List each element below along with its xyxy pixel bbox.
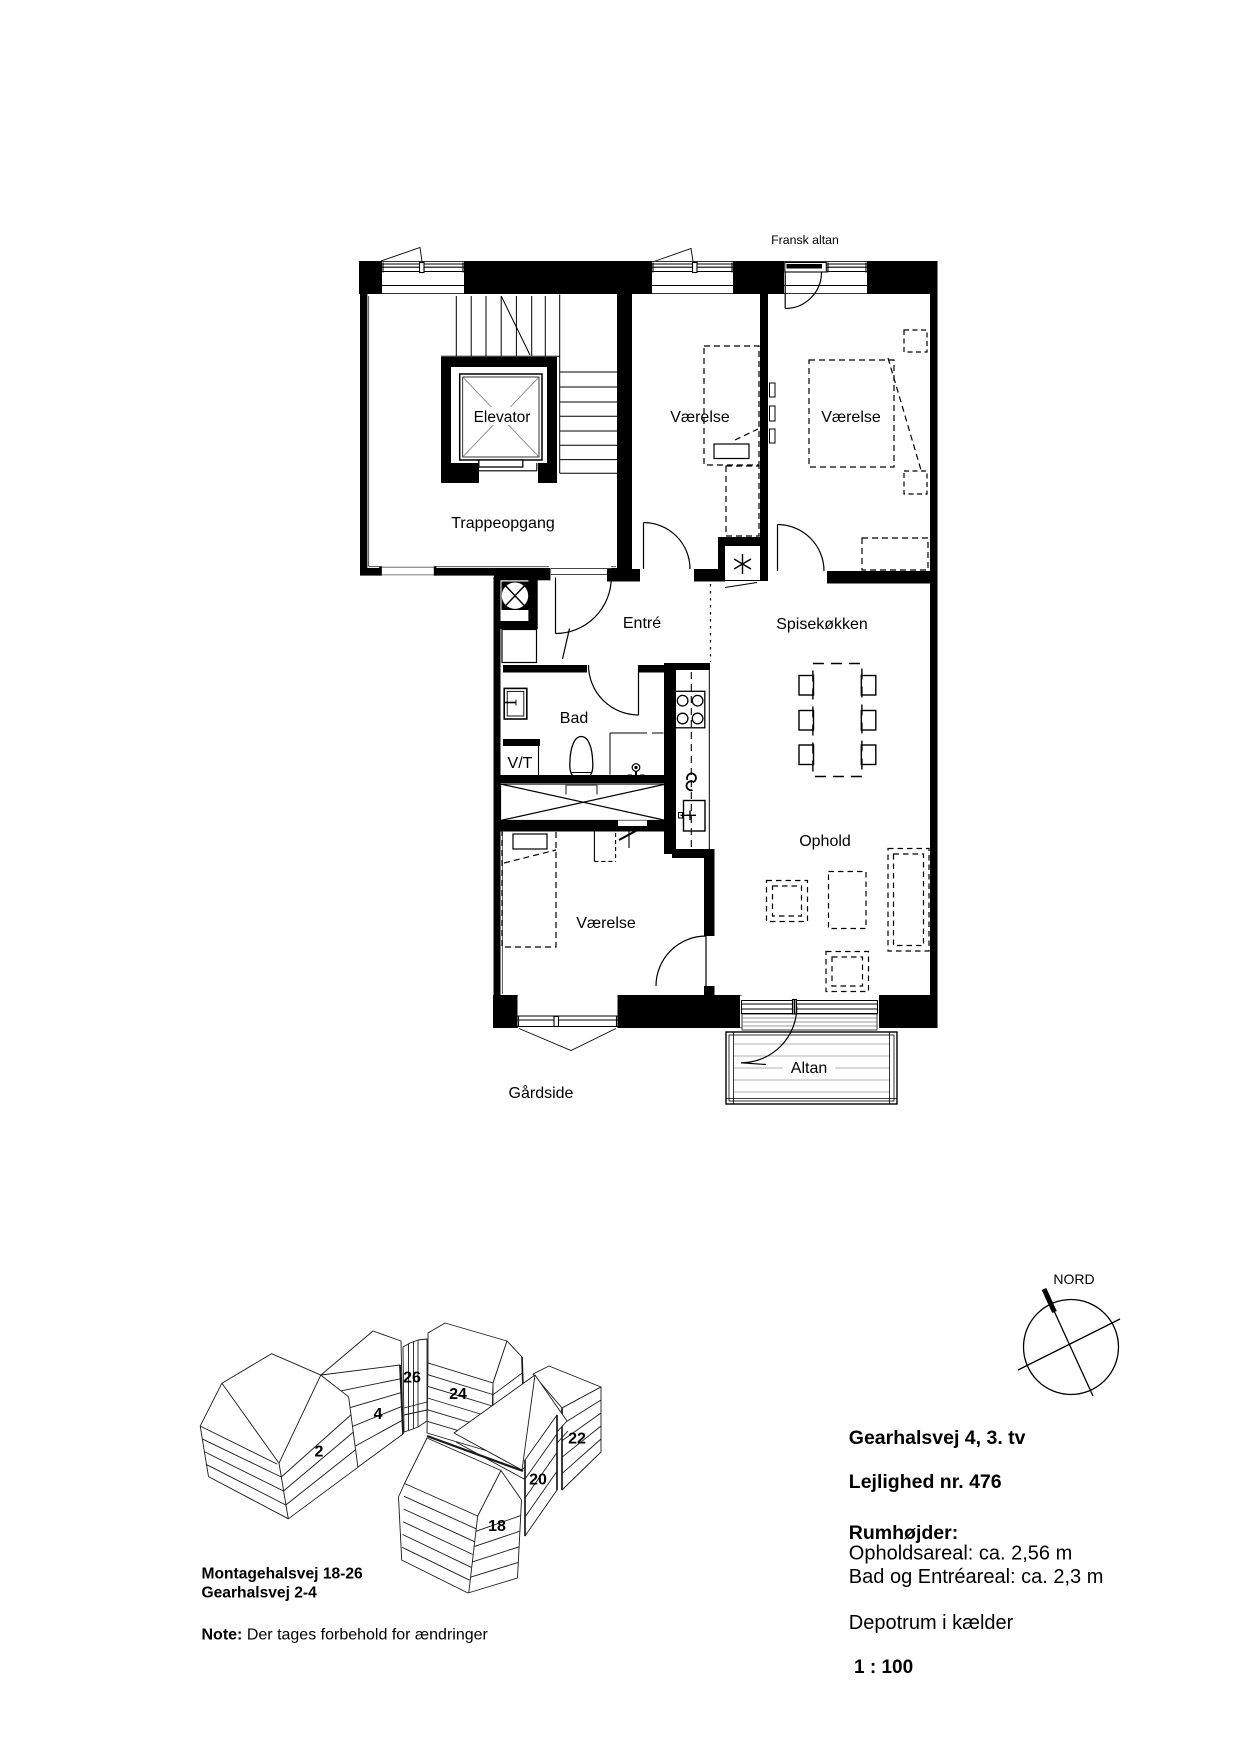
svg-text:Trappeopgang: Trappeopgang [451,515,555,532]
svg-text:Ophold: Ophold [799,833,851,850]
svg-text:Elevator: Elevator [474,409,531,426]
svg-text:Altan: Altan [791,1060,827,1077]
svg-text:26: 26 [403,1370,421,1387]
svg-text:Lejlighed nr. 476: Lejlighed nr. 476 [849,1471,1002,1493]
svg-text:22: 22 [568,1431,586,1448]
svg-text:20: 20 [529,1471,547,1488]
svg-text:Fransk altan: Fransk altan [771,233,839,247]
svg-text:Værelse: Værelse [670,409,730,426]
svg-text:Gårdside: Gårdside [509,1084,574,1102]
svg-text:18: 18 [488,1518,506,1535]
svg-text:2: 2 [315,1444,324,1461]
svg-text:Opholdsareal: ca. 2,56 m: Opholdsareal: ca. 2,56 m [849,1543,1072,1565]
svg-text:4: 4 [374,1406,383,1423]
svg-text:Gearhalsvej 2-4: Gearhalsvej 2-4 [202,1585,318,1602]
svg-text:Montagehalsvej 18-26: Montagehalsvej 18-26 [202,1566,364,1583]
svg-text:Depotrum i kælder: Depotrum i kælder [849,1612,1014,1634]
svg-text:24: 24 [449,1386,467,1403]
svg-text:Værelse: Værelse [576,915,636,932]
svg-text:Note: Der tages forbehold for: Note: Der tages forbehold for ændringer [202,1627,489,1644]
svg-text:NORD: NORD [1053,1271,1094,1287]
svg-text:Værelse: Værelse [821,409,881,426]
svg-text:Bad: Bad [560,710,588,727]
svg-text:Bad og Entréareal: ca. 2,3 m: Bad og Entréareal: ca. 2,3 m [849,1566,1104,1588]
svg-text:Gearhalsvej 4, 3. tv: Gearhalsvej 4, 3. tv [849,1427,1026,1449]
svg-text:Entré: Entré [623,615,661,632]
svg-text:Spisekøkken: Spisekøkken [776,616,868,633]
svg-text:Rumhøjder:: Rumhøjder: [849,1522,958,1544]
svg-text:V/T: V/T [508,755,533,772]
svg-text:1 : 100: 1 : 100 [854,1657,913,1678]
